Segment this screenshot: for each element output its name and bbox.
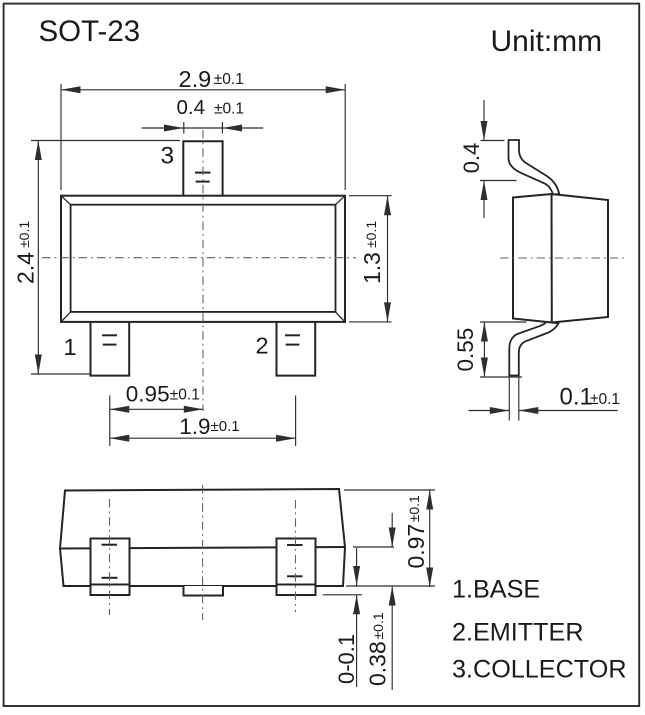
svg-text:0.38: 0.38: [364, 641, 390, 686]
svg-text:±0.1: ±0.1: [214, 71, 244, 88]
svg-text:0-0.1: 0-0.1: [334, 634, 359, 684]
svg-text:±0.1: ±0.1: [363, 221, 379, 248]
svg-text:2.4: 2.4: [13, 252, 39, 284]
svg-text:±0.1: ±0.1: [170, 387, 200, 404]
svg-text:±0.1: ±0.1: [16, 221, 32, 248]
svg-text:±0.1: ±0.1: [406, 495, 422, 522]
svg-text:SOT-23: SOT-23: [39, 15, 141, 48]
svg-text:1.3: 1.3: [359, 252, 385, 284]
svg-text:±0.1: ±0.1: [370, 612, 386, 639]
svg-text:0.4: 0.4: [177, 96, 206, 119]
svg-text:2: 2: [256, 333, 269, 359]
svg-text:0.95: 0.95: [126, 382, 170, 407]
svg-text:±0.1: ±0.1: [590, 391, 620, 408]
svg-text:1: 1: [64, 334, 77, 360]
svg-text:0.1: 0.1: [560, 384, 593, 411]
svg-text:1.9: 1.9: [179, 414, 210, 439]
svg-text:±0.1: ±0.1: [211, 418, 240, 435]
svg-text:±0.1: ±0.1: [214, 101, 244, 118]
svg-text:Unit:mm: Unit:mm: [491, 25, 603, 58]
svg-text:3: 3: [161, 143, 175, 170]
svg-text:0.4: 0.4: [459, 143, 484, 174]
svg-text:1.BASE: 1.BASE: [452, 576, 540, 604]
svg-text:2.9: 2.9: [179, 66, 212, 92]
svg-text:0.97: 0.97: [403, 524, 429, 569]
svg-text:0.55: 0.55: [453, 328, 478, 372]
svg-text:2.EMITTER: 2.EMITTER: [452, 619, 584, 647]
svg-text:3.COLLECTOR: 3.COLLECTOR: [452, 656, 627, 684]
